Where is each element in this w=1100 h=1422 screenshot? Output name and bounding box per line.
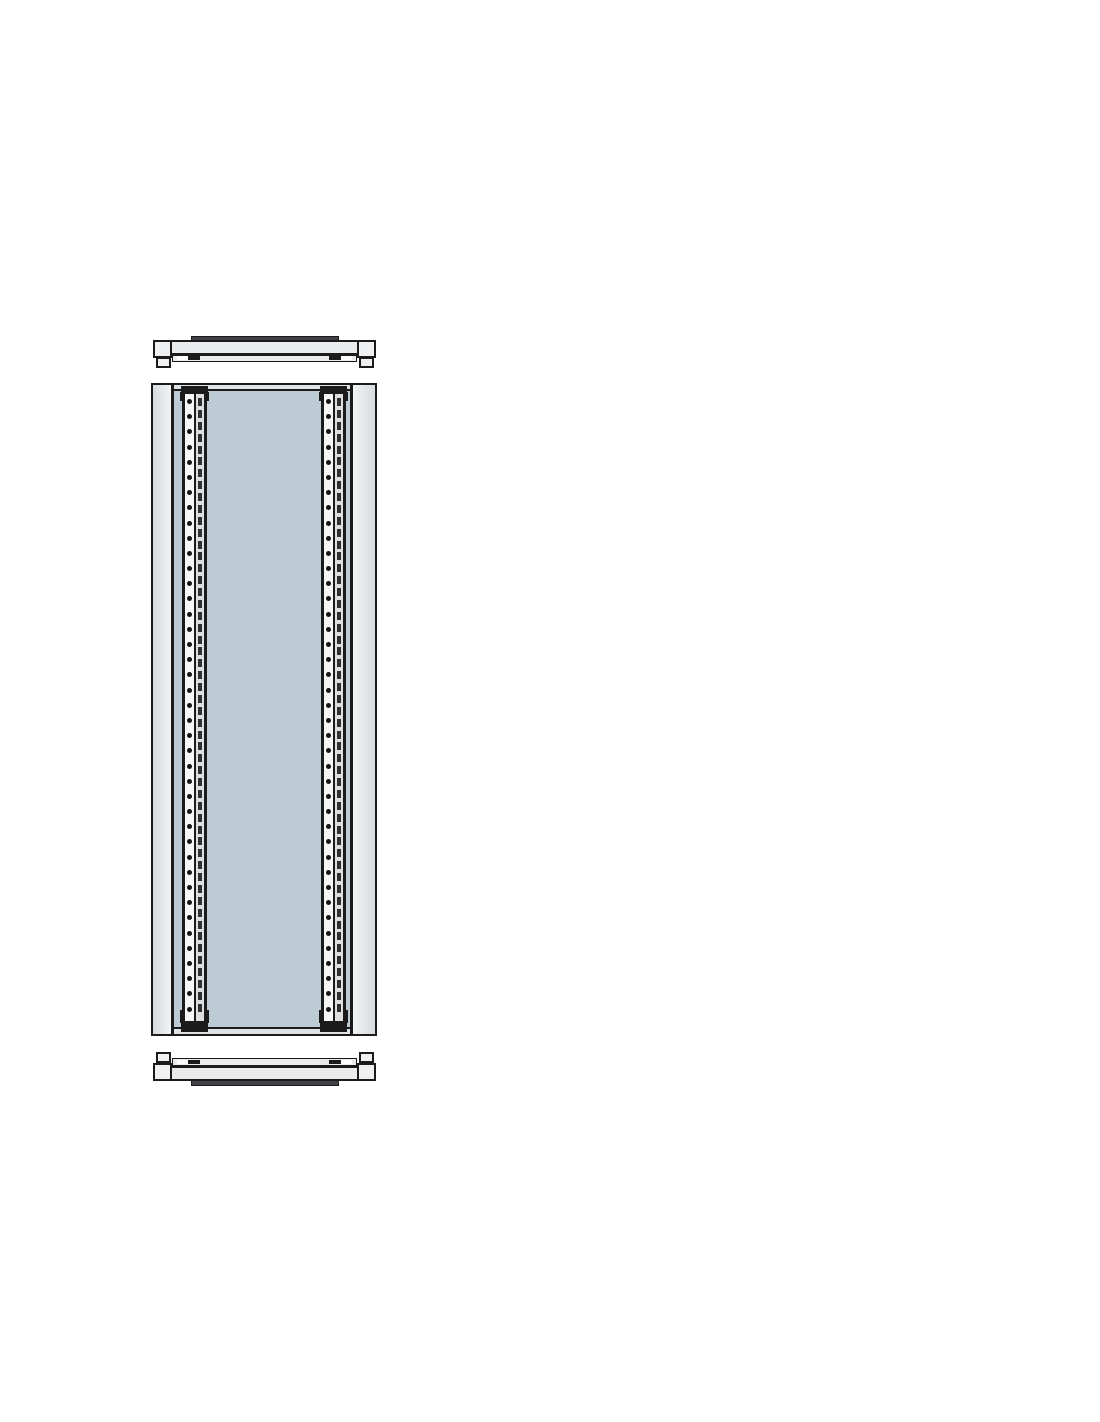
rail-hole-column — [324, 386, 334, 1032]
rail-fixing-tab — [319, 392, 324, 401]
rail-slot-column — [335, 386, 343, 1032]
rail-hole-column — [185, 386, 195, 1032]
panel-side-flange-right — [353, 385, 375, 1034]
bottom-rail-corner-block-left — [153, 1063, 172, 1081]
rail-fixing-tab — [180, 1010, 185, 1023]
mount-notch — [177, 1060, 188, 1064]
bottom-rail-bar — [170, 1065, 359, 1081]
rail-fixing-tab — [319, 1010, 324, 1023]
mount-clip — [329, 356, 341, 360]
rail-fixing-tab — [343, 392, 348, 401]
rail-slot-column — [196, 386, 204, 1032]
mount-notch — [177, 356, 188, 360]
upright-rail-left — [182, 386, 207, 1032]
bottom-rail-corner-lug-left — [156, 1052, 171, 1063]
top-rail-corner-block-right — [357, 340, 376, 358]
rail-edge — [343, 386, 346, 1032]
top-rail-bar — [170, 340, 359, 356]
mount-clip — [188, 356, 200, 360]
top-rail-corner-block-left — [153, 340, 172, 358]
panel-side-flange-left — [153, 385, 171, 1034]
rail-fixing-tab — [343, 1010, 348, 1023]
mount-notch — [341, 1060, 352, 1064]
rail-fixing-tab — [180, 392, 185, 401]
rail-fixing-tab — [204, 392, 209, 401]
top-rail-corner-lug-right — [359, 357, 374, 368]
rail-fixing-tab — [204, 1010, 209, 1023]
upright-rail-right — [321, 386, 346, 1032]
mount-clip — [329, 1060, 341, 1064]
exploded-view-diagram — [0, 0, 1100, 1422]
bottom-rail-corner-block-right — [357, 1063, 376, 1081]
bottom-rail-corner-lug-right — [359, 1052, 374, 1063]
rail-edge — [204, 386, 207, 1032]
top-rail-corner-lug-left — [156, 357, 171, 368]
mount-notch — [341, 356, 352, 360]
mount-clip — [188, 1060, 200, 1064]
